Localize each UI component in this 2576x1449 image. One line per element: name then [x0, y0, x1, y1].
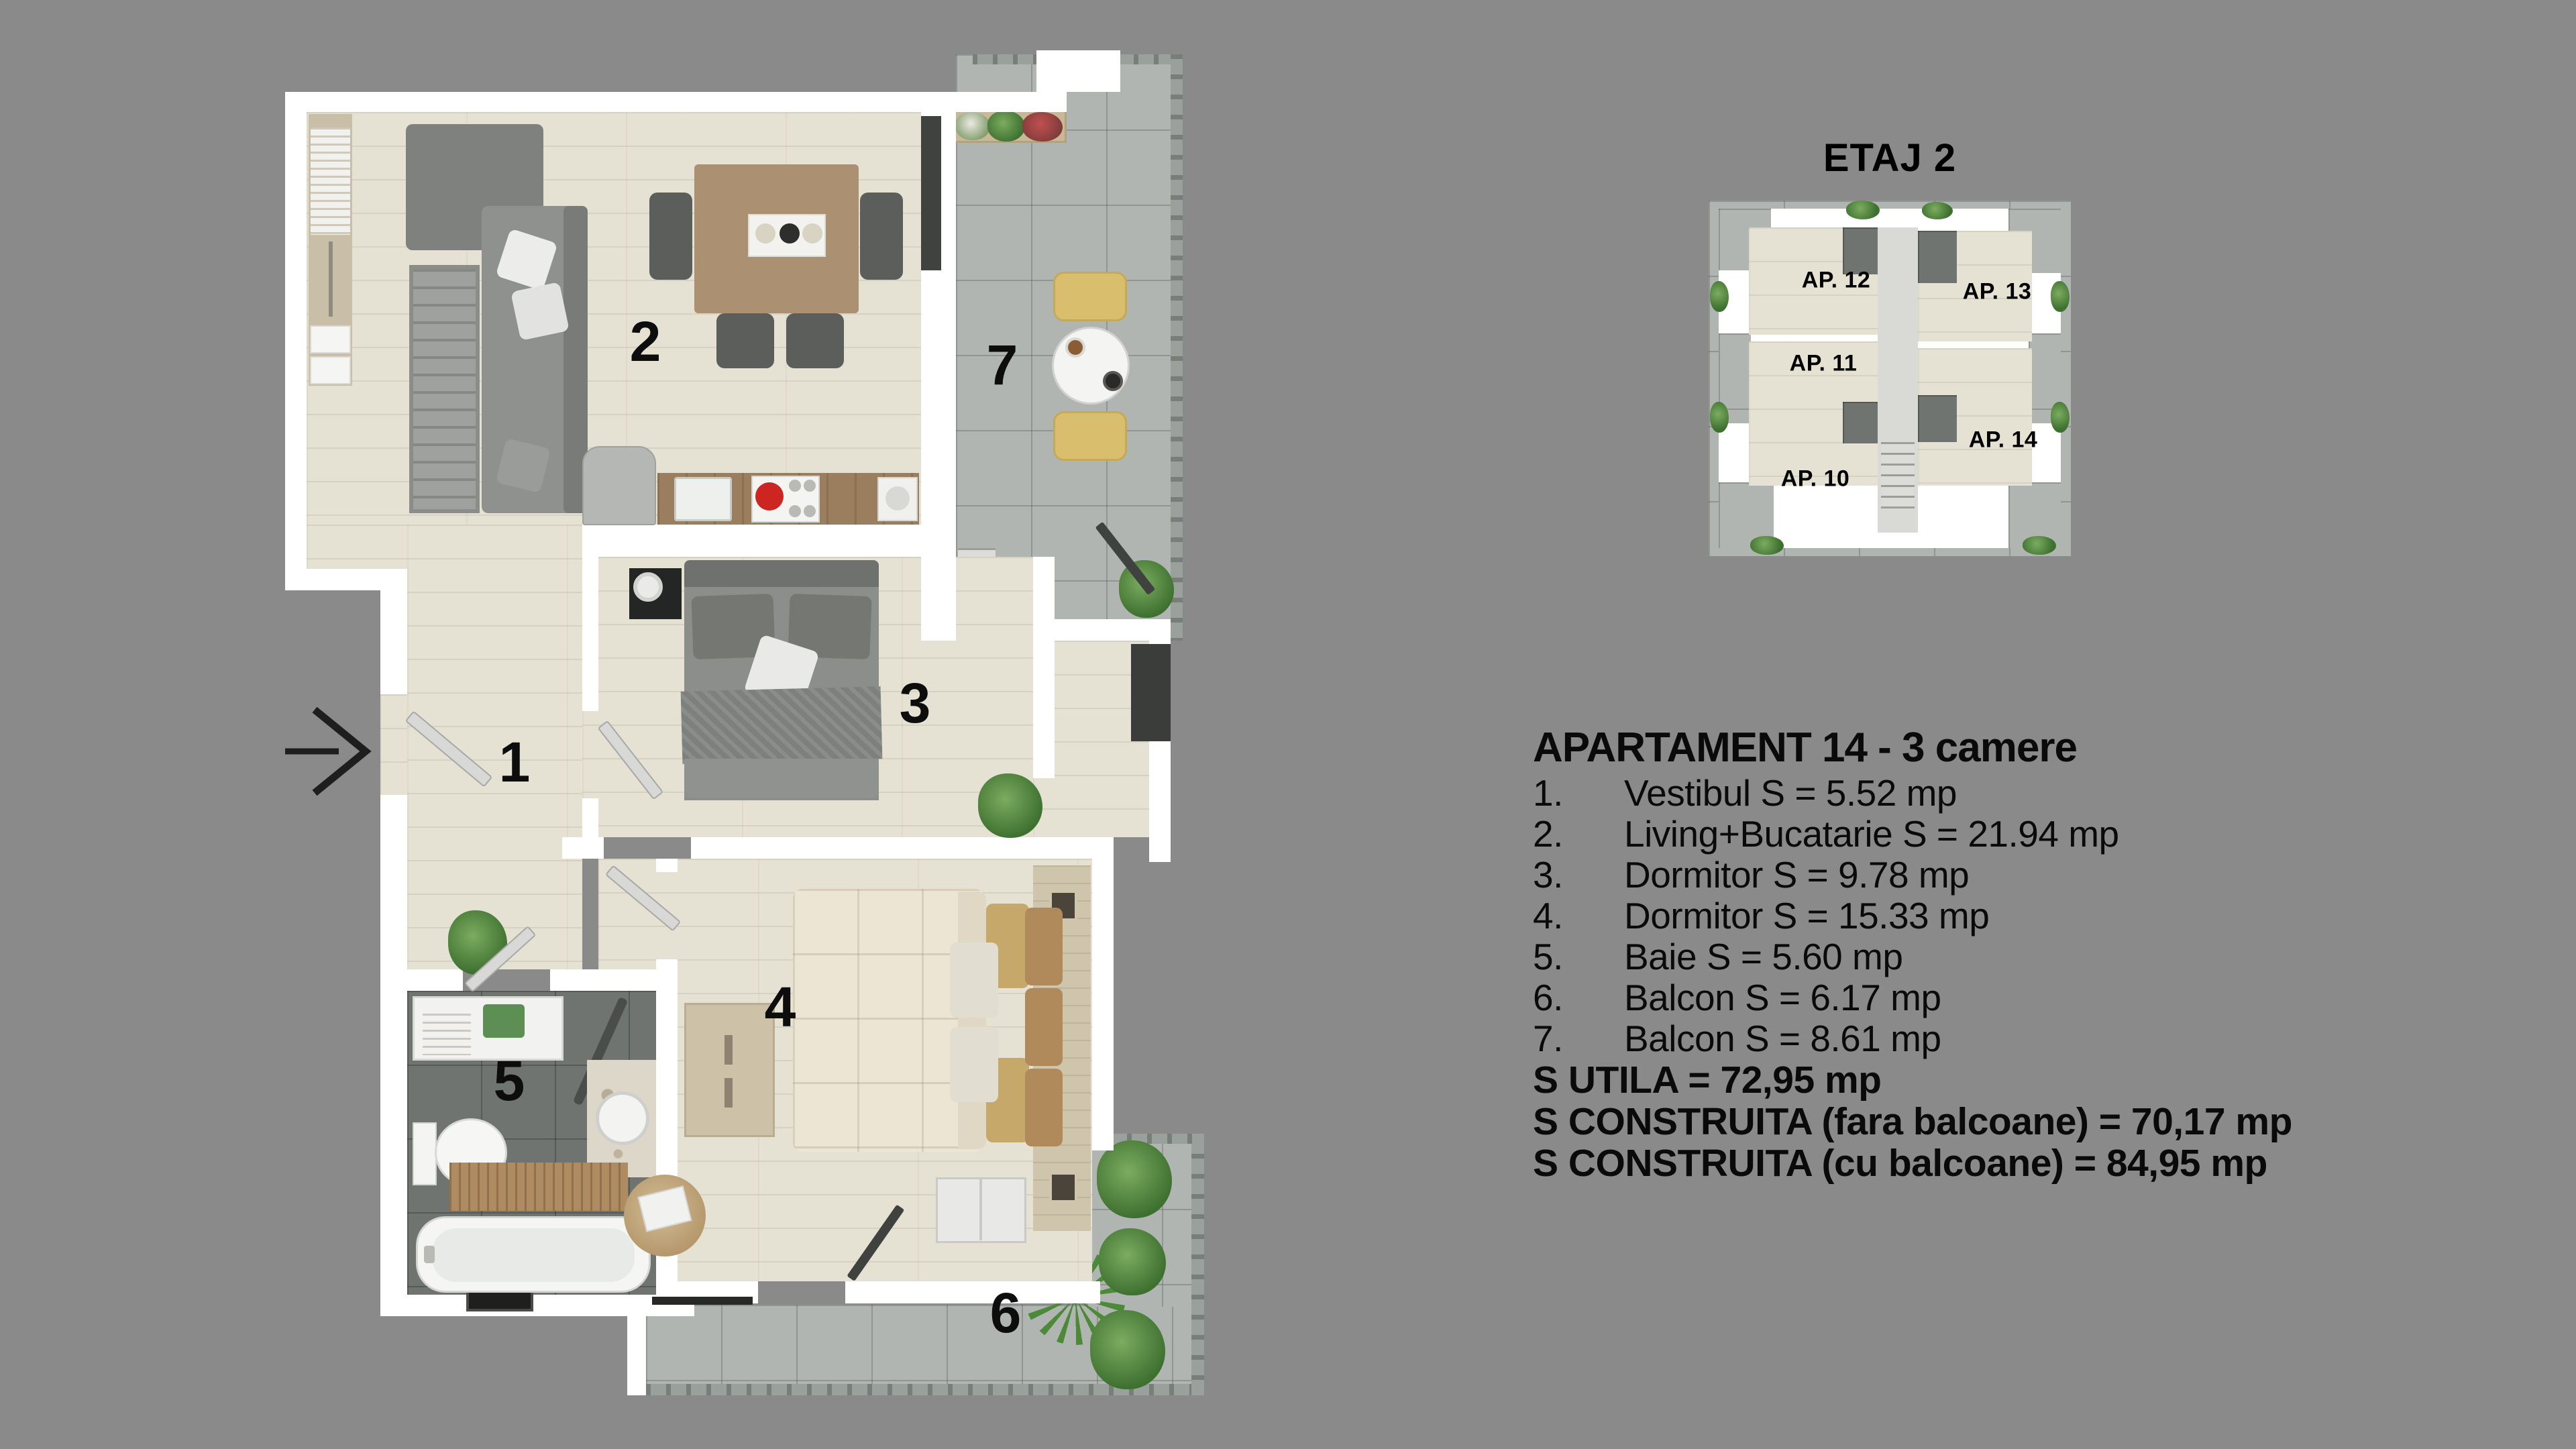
- stove-pot-red: [755, 482, 784, 511]
- bath-mat: [449, 1163, 628, 1211]
- wall-bedroom4-right: [1092, 859, 1114, 1150]
- mini-plan: AP. 12 AP. 13 AP. 11 AP. 14 AP. 10: [1709, 201, 2071, 556]
- info-row-3-no: 3.: [1533, 855, 1624, 896]
- wall-h3-a: [562, 837, 604, 859]
- mini-plant-4: [1710, 402, 1729, 433]
- balcony-7-chair-bottom: [1053, 411, 1127, 461]
- bath-towel-green: [483, 1004, 525, 1038]
- mini-label-ap10: AP. 10: [1781, 466, 1850, 492]
- info-row-2: 2.Living+Bucatarie S = 21.94 mp: [1533, 814, 2338, 855]
- info-row-1-text: Vestibul S = 5.52 mp: [1624, 772, 1957, 814]
- entrance-arrow-icon: [285, 704, 374, 798]
- floor-plan: 1 2 3 4 5 6 7: [282, 50, 1207, 1426]
- bathtub-inner: [432, 1228, 635, 1282]
- info-row-1: 1.Vestibul S = 5.52 mp: [1533, 773, 2338, 814]
- wall-h3-b: [691, 837, 1114, 859]
- wall-balcony-7-bottom: [1046, 619, 1171, 641]
- room-label-2: 2: [630, 313, 661, 370]
- balcony-7-chair-top: [1053, 272, 1127, 321]
- bed-4-pillow-white-1: [950, 943, 998, 1018]
- sliding-door-balcony-7: [921, 116, 941, 270]
- bed-4-duvet: [793, 889, 984, 1152]
- info-row-4-text: Dormitor S = 15.33 mp: [1624, 895, 1989, 936]
- wall-bath-top-b: [550, 969, 678, 991]
- mini-label-ap14: AP. 14: [1969, 427, 2038, 453]
- closet-4-divider: [979, 1179, 982, 1240]
- mini-bath-3: [1843, 402, 1878, 443]
- dresser-4-handle-1: [724, 1035, 733, 1065]
- bed-4-nightstand-handle-2: [1049, 1172, 1077, 1203]
- wall-bath-bottom: [384, 1295, 694, 1316]
- stove-burner-1: [789, 480, 801, 492]
- hall-floor: [407, 525, 582, 969]
- mini-plant-1: [1846, 201, 1880, 219]
- dining-chair-bottom-2: [786, 313, 844, 368]
- bathtub-faucet: [424, 1246, 435, 1263]
- bed-4-pillow-brown-2: [1025, 988, 1063, 1066]
- info-row-5-text: Baie S = 5.60 mp: [1624, 936, 1902, 977]
- info-row-7-no: 7.: [1533, 1018, 1624, 1059]
- etaj-title: ETAJ 2: [1709, 136, 2071, 180]
- info-row-6: 6.Balcon S = 6.17 mp: [1533, 977, 2338, 1018]
- closet-drawer-2: [310, 356, 351, 384]
- apartment-info-title: APARTAMENT 14 - 3 camere: [1533, 723, 2338, 773]
- dishwasher-basin: [885, 486, 910, 511]
- kitchen-sink: [674, 477, 732, 521]
- stove-burner-4: [804, 505, 816, 517]
- wall-kitchen: [582, 525, 921, 557]
- closet-drawer-1: [310, 325, 351, 354]
- hall-floor-upper: [307, 525, 407, 569]
- tray-plate-3: [802, 223, 822, 244]
- apartment-info: APARTAMENT 14 - 3 camere 1.Vestibul S = …: [1533, 723, 2338, 1184]
- balcony-6-wall-left: [627, 1316, 646, 1395]
- total-construita-fara: S CONSTRUITA (fara balcoane) = 70,17 mp: [1533, 1101, 2338, 1142]
- room-label-5: 5: [494, 1053, 525, 1109]
- info-row-4: 4.Dormitor S = 15.33 mp: [1533, 896, 2338, 936]
- stove-burner-2: [804, 480, 816, 492]
- mini-plant-3: [1710, 281, 1729, 312]
- flower-box-plant-green: [987, 111, 1025, 142]
- mini-staircase: [1881, 442, 1915, 509]
- info-row-7: 7.Balcon S = 8.61 mp: [1533, 1018, 2338, 1059]
- bed-4-duvet-fold: [958, 892, 986, 1149]
- stove-burner-3: [789, 505, 801, 517]
- info-row-3: 3.Dormitor S = 9.78 mp: [1533, 855, 2338, 896]
- mini-label-ap12: AP. 12: [1802, 268, 1871, 294]
- balcony-7-wall-notch: [1036, 50, 1120, 92]
- total-construita-cu: S CONSTRUITA (cu balcoane) = 84,95 mp: [1533, 1142, 2338, 1184]
- pivot-door-gray: [582, 446, 656, 525]
- nightstand-3-lamp: [633, 572, 663, 602]
- balcony-7-railing-right: [1171, 54, 1183, 641]
- wall-left-step: [285, 569, 407, 590]
- bed-4-pillow-white-2: [950, 1027, 998, 1102]
- bed-3-foot: [684, 759, 879, 798]
- info-row-2-text: Living+Bucatarie S = 21.94 mp: [1624, 813, 2119, 855]
- balcony-7-table: [1052, 327, 1130, 405]
- sofa-pillow-white-2: [511, 282, 570, 341]
- tray-plate-1: [755, 223, 775, 244]
- mini-plant-2: [1922, 202, 1953, 219]
- room-label-7: 7: [987, 337, 1018, 393]
- balcony-6-plant-3: [1090, 1310, 1165, 1389]
- info-row-3-text: Dormitor S = 9.78 mp: [1624, 854, 1969, 896]
- wall-left-lower-b: [380, 795, 407, 1316]
- bed-4-pillow-brown-3: [1025, 1069, 1063, 1146]
- dining-chair-left: [649, 193, 692, 280]
- dining-chair-bottom-1: [716, 313, 774, 368]
- room-label-1: 1: [499, 734, 531, 790]
- info-row-7-text: Balcon S = 8.61 mp: [1624, 1018, 1941, 1059]
- info-row-5-no: 5.: [1533, 936, 1624, 977]
- bed-3-blanket: [681, 686, 883, 764]
- mini-label-ap13: AP. 13: [1963, 279, 2032, 305]
- closet-rod: [329, 241, 333, 317]
- flower-box-plant-white: [955, 112, 990, 140]
- total-utila: S UTILA = 72,95 mp: [1533, 1059, 2338, 1101]
- mini-plant-8: [2023, 536, 2056, 555]
- mini-bath-4: [1918, 395, 1957, 442]
- wardrobe-corridor-dark: [1131, 644, 1171, 741]
- coffee-cup-icon: [1103, 371, 1123, 391]
- wall-bath-top-a: [384, 969, 463, 991]
- closet-shelves: [311, 127, 350, 235]
- wall-bedroom3-corridor: [1033, 557, 1055, 778]
- bed-4-pillow-brown-1: [1025, 908, 1063, 985]
- sink-basin: [596, 1091, 649, 1145]
- living-rug: [409, 265, 480, 513]
- bed-3-headboard: [684, 560, 879, 590]
- balcony-6-railing-right: [1191, 1134, 1204, 1395]
- room-label-4: 4: [765, 979, 796, 1035]
- info-row-6-no: 6.: [1533, 977, 1624, 1018]
- coffee-cup2-icon: [1065, 337, 1085, 358]
- wall-hall-bedroom3-a: [582, 557, 598, 711]
- toilet-tank: [413, 1122, 437, 1185]
- balcony-6-door-track: [652, 1297, 753, 1305]
- flower-box-plant-red: [1022, 112, 1063, 142]
- info-row-2-no: 2.: [1533, 814, 1624, 855]
- mini-plant-7: [1750, 536, 1784, 555]
- balcony-6-plant-1: [1097, 1140, 1172, 1218]
- room-label-6: 6: [990, 1285, 1022, 1341]
- page: { "etaj_title": "ETAJ 2", "mini_plan": {…: [0, 0, 2576, 1449]
- wall-left-upper: [285, 92, 307, 590]
- mini-plant-5: [2051, 281, 2070, 312]
- bath-towel-stack: [423, 1014, 471, 1055]
- info-row-5: 5.Baie S = 5.60 mp: [1533, 936, 2338, 977]
- dining-chair-right: [860, 193, 903, 280]
- bedroom-3-plant: [978, 773, 1042, 838]
- mini-plant-6: [2051, 402, 2070, 433]
- wall-left-lower-a: [380, 590, 407, 694]
- balcony-6-plant-2: [1099, 1228, 1166, 1295]
- wall-bedroom4-balcony-b: [845, 1281, 1100, 1303]
- wall-hall-bedroom3-b: [582, 798, 598, 837]
- mini-bath-2: [1918, 231, 1957, 283]
- hall-door-threshold: [380, 694, 407, 795]
- mini-label-ap11: AP. 11: [1790, 351, 1858, 377]
- info-row-1-no: 1.: [1533, 773, 1624, 814]
- room-label-3: 3: [900, 675, 931, 731]
- info-row-4-no: 4.: [1533, 896, 1624, 936]
- info-row-6-text: Balcon S = 6.17 mp: [1624, 977, 1941, 1018]
- dresser-4-handle-2: [724, 1078, 733, 1108]
- wall-bath-bedroom4-a: [656, 859, 678, 872]
- dresser-4: [684, 1003, 775, 1137]
- tray-plate-2: [780, 223, 800, 244]
